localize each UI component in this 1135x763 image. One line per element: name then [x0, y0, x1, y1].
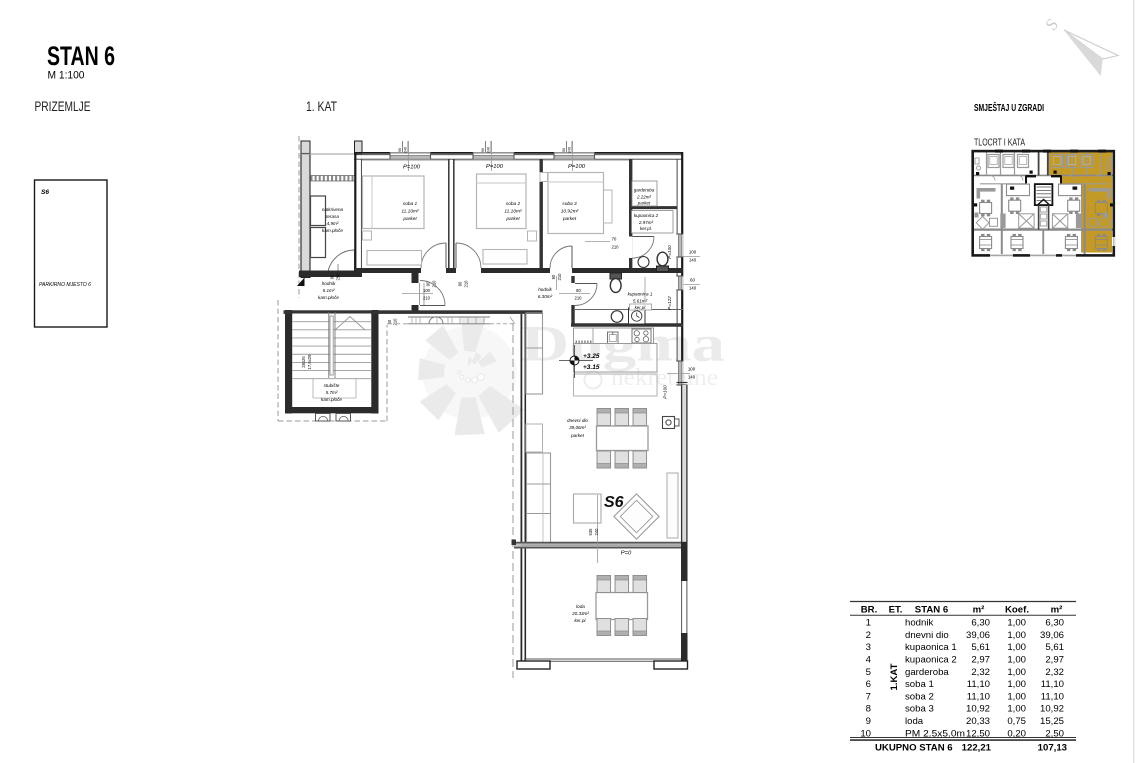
- svg-text:2,32: 2,32: [971, 667, 990, 678]
- svg-text:P=100: P=100: [568, 164, 586, 170]
- svg-text:soba 1: soba 1: [403, 201, 418, 207]
- svg-text:90: 90: [330, 274, 335, 279]
- svg-text:S6: S6: [41, 189, 49, 196]
- svg-text:soba 3: soba 3: [905, 704, 934, 715]
- svg-text:11,10: 11,10: [967, 691, 990, 702]
- svg-text:+3.25: +3.25: [583, 353, 600, 360]
- svg-text:11.10m²: 11.10m²: [401, 209, 419, 215]
- svg-text:100: 100: [688, 367, 696, 372]
- svg-text:1. KAT: 1. KAT: [306, 98, 337, 114]
- svg-text:210: 210: [464, 280, 469, 288]
- svg-text:P=122: P=122: [667, 296, 672, 310]
- svg-text:11,10: 11,10: [1041, 691, 1064, 702]
- svg-text:39,06: 39,06: [966, 630, 990, 641]
- svg-text:hodnik: hodnik: [538, 287, 552, 292]
- svg-text:240: 240: [594, 528, 599, 536]
- svg-text:M 1:100: M 1:100: [48, 70, 85, 82]
- svg-text:140: 140: [689, 286, 697, 291]
- svg-text:6,30: 6,30: [1045, 618, 1064, 629]
- svg-text:ET.: ET.: [889, 605, 903, 616]
- svg-text:15,25: 15,25: [1040, 716, 1064, 727]
- svg-text:12,50: 12,50: [966, 728, 990, 739]
- svg-text:210: 210: [557, 273, 562, 281]
- svg-text:210: 210: [393, 318, 398, 326]
- svg-text:11,10: 11,10: [1041, 679, 1064, 690]
- svg-text:kupaonica 1: kupaonica 1: [628, 292, 653, 297]
- svg-text:1,00: 1,00: [1007, 630, 1026, 641]
- svg-text:70: 70: [612, 237, 617, 242]
- svg-text:90: 90: [398, 148, 402, 152]
- svg-text:17,5x29: 17,5x29: [307, 354, 312, 370]
- svg-text:parket: parket: [570, 433, 584, 438]
- svg-text:0,75: 0,75: [1007, 716, 1026, 727]
- svg-text:1.KAT: 1.KAT: [889, 663, 900, 690]
- svg-text:20,33: 20,33: [966, 716, 990, 727]
- svg-text:1,00: 1,00: [1007, 654, 1026, 665]
- svg-text:garderoba: garderoba: [905, 667, 949, 678]
- svg-text:4,9m²: 4,9m²: [327, 221, 339, 226]
- svg-text:parket: parket: [402, 216, 417, 222]
- svg-text:5.7m²: 5.7m²: [326, 390, 338, 395]
- svg-text:20.33m²: 20.33m²: [571, 611, 589, 616]
- svg-text:90: 90: [562, 148, 566, 152]
- svg-text:60: 60: [690, 278, 695, 283]
- svg-text:ker.pl.: ker.pl.: [635, 305, 647, 310]
- svg-text:6,30: 6,30: [971, 618, 990, 629]
- svg-text:122,21: 122,21: [962, 743, 992, 754]
- svg-text:11,10: 11,10: [967, 679, 990, 690]
- svg-text:soba 2: soba 2: [506, 201, 521, 207]
- svg-text:kupaonica 2: kupaonica 2: [634, 213, 659, 218]
- svg-text:kupaonica 1: kupaonica 1: [905, 642, 957, 653]
- svg-text:STAN 6: STAN 6: [915, 605, 948, 616]
- svg-text:SMJEŠTAJ U ZGRADI: SMJEŠTAJ U ZGRADI: [974, 101, 1044, 114]
- svg-text:1,00: 1,00: [1007, 704, 1026, 715]
- svg-text:natkrivena: natkrivena: [322, 207, 344, 212]
- svg-text:1,00: 1,00: [1007, 691, 1026, 702]
- svg-text:2: 2: [866, 630, 871, 641]
- svg-text:parket: parket: [637, 201, 651, 206]
- svg-text:90: 90: [551, 274, 556, 279]
- svg-text:P=100: P=100: [663, 385, 668, 399]
- svg-text:2.97m²: 2.97m²: [638, 220, 654, 225]
- svg-text:10,92: 10,92: [1040, 704, 1064, 715]
- svg-text:9: 9: [866, 716, 871, 727]
- svg-text:kam.ploče: kam.ploče: [322, 228, 343, 233]
- svg-text:m²: m²: [1051, 605, 1063, 616]
- svg-text:10: 10: [860, 728, 871, 739]
- svg-text:loda: loda: [576, 604, 585, 609]
- svg-text:1: 1: [866, 618, 871, 629]
- svg-text:ker.pl.: ker.pl.: [574, 618, 586, 623]
- svg-text:parket: parket: [562, 216, 577, 222]
- svg-text:2.22m²: 2.22m²: [636, 194, 652, 199]
- svg-text:210: 210: [612, 245, 620, 250]
- svg-text:hodnik: hodnik: [322, 281, 336, 286]
- svg-text:5,61: 5,61: [1045, 642, 1064, 653]
- svg-text:5: 5: [866, 667, 871, 678]
- svg-text:m²: m²: [973, 605, 985, 616]
- svg-text:parket: parket: [505, 216, 520, 222]
- svg-text:STAN 6: STAN 6: [47, 41, 115, 71]
- svg-text:soba 1: soba 1: [905, 679, 934, 690]
- svg-text:10.92m²: 10.92m²: [561, 209, 579, 215]
- svg-text:100: 100: [423, 288, 431, 293]
- svg-text:dnevni dio: dnevni dio: [567, 418, 588, 423]
- svg-text:80: 80: [576, 288, 581, 293]
- svg-text:140: 140: [688, 375, 696, 380]
- svg-text:1,00: 1,00: [1007, 667, 1026, 678]
- svg-text:240: 240: [404, 147, 408, 153]
- svg-text:kupaonica 2: kupaonica 2: [905, 654, 957, 665]
- svg-text:28x26: 28x26: [301, 356, 306, 368]
- svg-text:UKUPNO STAN 6: UKUPNO STAN 6: [875, 743, 953, 754]
- svg-text:10,92: 10,92: [966, 704, 990, 715]
- svg-text:2,50: 2,50: [1045, 728, 1064, 739]
- svg-text:240: 240: [568, 147, 572, 153]
- svg-text:2,32: 2,32: [1045, 667, 1064, 678]
- svg-text:P=100: P=100: [486, 164, 504, 170]
- svg-text:6.30m²: 6.30m²: [538, 294, 553, 299]
- svg-text:PM 2.5x5.0m: PM 2.5x5.0m: [905, 728, 965, 739]
- svg-text:39,06: 39,06: [1040, 630, 1064, 641]
- svg-text:107,13: 107,13: [1038, 743, 1067, 754]
- svg-text:8: 8: [866, 704, 871, 715]
- svg-text:soba 2: soba 2: [905, 691, 934, 702]
- svg-text:ker.pl.: ker.pl.: [640, 226, 652, 231]
- svg-text:39,06m²: 39,06m²: [569, 425, 586, 430]
- svg-text:0,20: 0,20: [1007, 728, 1026, 739]
- svg-text:P=0: P=0: [621, 551, 632, 557]
- svg-text:3: 3: [866, 642, 871, 653]
- svg-text:loda: loda: [905, 716, 924, 727]
- svg-text:210: 210: [575, 296, 583, 301]
- svg-text:kam.ploče: kam.ploče: [321, 397, 342, 402]
- svg-text:P=100: P=100: [667, 245, 672, 259]
- svg-text:TLOCRT I KATA: TLOCRT I KATA: [974, 137, 1025, 148]
- svg-text:90: 90: [458, 281, 463, 286]
- svg-text:1,00: 1,00: [1007, 642, 1026, 653]
- svg-text:1,00: 1,00: [1007, 679, 1026, 690]
- svg-text:140: 140: [689, 258, 697, 263]
- svg-text:stubište: stubište: [324, 383, 340, 388]
- svg-text:2,97: 2,97: [971, 654, 990, 665]
- svg-text:1,00: 1,00: [1007, 618, 1026, 629]
- svg-text:6: 6: [866, 679, 871, 690]
- svg-text:210: 210: [423, 296, 431, 301]
- svg-text:240: 240: [487, 147, 491, 153]
- svg-text:11.10m²: 11.10m²: [504, 209, 522, 215]
- svg-text:dnevni dio: dnevni dio: [905, 630, 949, 641]
- svg-text:soba 3: soba 3: [562, 201, 577, 207]
- svg-text:S6: S6: [604, 494, 624, 511]
- svg-text:2,97: 2,97: [1045, 654, 1064, 665]
- svg-text:hodnik: hodnik: [905, 618, 933, 629]
- svg-text:4: 4: [866, 654, 872, 665]
- svg-text:5,61: 5,61: [971, 642, 990, 653]
- svg-text:250: 250: [336, 273, 341, 281]
- svg-text:kam.ploče: kam.ploče: [318, 295, 339, 300]
- svg-text:BR.: BR.: [861, 605, 878, 616]
- svg-text:100: 100: [689, 250, 697, 255]
- svg-text:Koef.: Koef.: [1005, 605, 1029, 616]
- svg-text:garderoba: garderoba: [634, 188, 655, 193]
- svg-text:PARKIRNO MJESTO 6: PARKIRNO MJESTO 6: [39, 282, 92, 288]
- svg-text:535: 535: [588, 528, 593, 536]
- svg-text:5.1m²: 5.1m²: [323, 288, 335, 293]
- svg-text:+3.15: +3.15: [583, 364, 600, 371]
- svg-text:PRIZEMLJE: PRIZEMLJE: [35, 98, 91, 114]
- svg-text:90: 90: [481, 148, 485, 152]
- svg-text:7: 7: [866, 691, 871, 702]
- svg-text:P=100: P=100: [403, 165, 421, 171]
- svg-text:terasa: terasa: [326, 214, 339, 219]
